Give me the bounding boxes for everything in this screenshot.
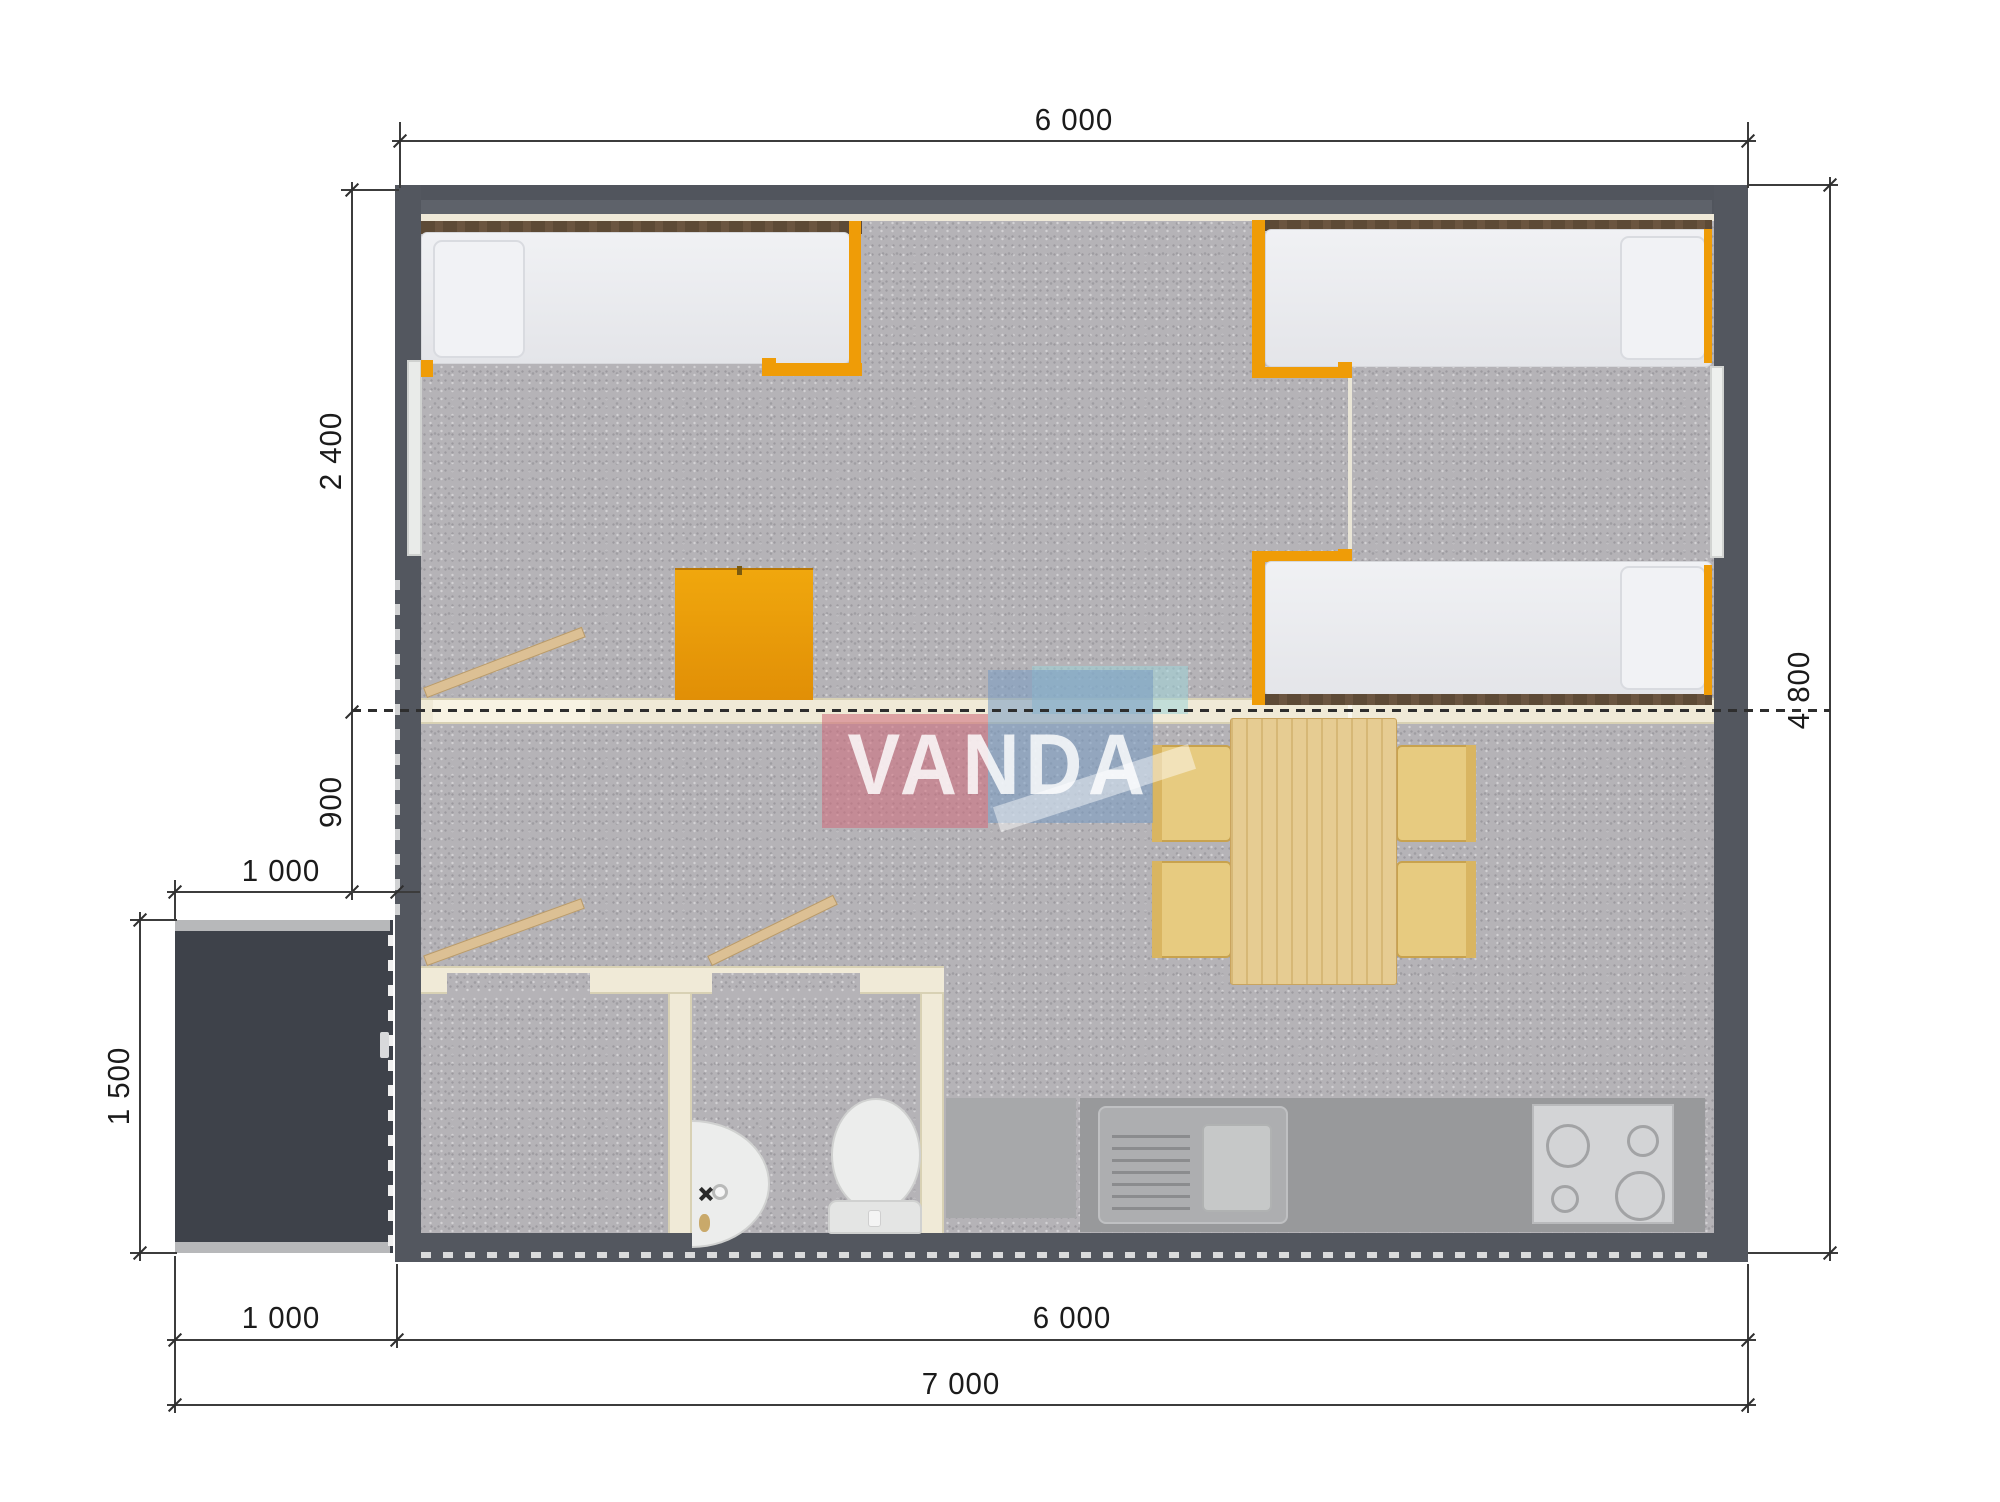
dim-porch-top-line (167, 891, 420, 893)
dim-bedroom-depth-label: 2 400 (314, 385, 348, 518)
chair-bottom-left (1152, 861, 1232, 958)
dim-top-ext-left (399, 122, 401, 188)
bed1-pillow (433, 240, 525, 358)
watermark-brand-text: VANDA (840, 706, 1158, 824)
left-wall-dash-marks (395, 580, 400, 915)
top-wall-inner-band (421, 200, 1712, 214)
dim-total-depth-label: 4 800 (1782, 624, 1816, 757)
bathroom-door-opening-right (712, 973, 860, 994)
right-wall (1714, 185, 1748, 1262)
dim-bottom-line (167, 1339, 1756, 1341)
dim-bottom-ext-mid (396, 1264, 398, 1348)
bed3-pillow (1620, 566, 1706, 690)
floor-plan-canvas: VANDA 6 000 2 400 900 1 000 1 500 1 000 … (0, 0, 2000, 1502)
bed2-frame-post-right (1704, 229, 1712, 363)
bed2-foot-bracket (1338, 362, 1352, 378)
faucet-icon (712, 1184, 728, 1200)
porch-step-top (175, 920, 390, 931)
toilet-bowl (831, 1098, 921, 1212)
bed3-frame-post-left (1252, 551, 1265, 705)
bed1-foot-rail (762, 363, 862, 376)
dim-porch-width-bottom-label: 1 000 (215, 1301, 348, 1335)
dim-top-ext-right (1747, 122, 1749, 188)
entry-door-handle-icon (380, 1032, 389, 1058)
dim-total-depth-line (1829, 177, 1831, 1261)
dim-porch-width-top-label: 1 000 (215, 854, 348, 888)
desk (675, 568, 813, 700)
desk-handle-icon (737, 566, 742, 575)
bathroom-door-opening-left (447, 973, 590, 994)
bed2-frame-post-left (1252, 220, 1265, 377)
dim-top-width-label: 6 000 (1008, 103, 1141, 137)
stove-burner-top-right (1627, 1125, 1659, 1157)
dim-main-width-bottom-label: 6 000 (1006, 1301, 1139, 1335)
window-right (1710, 366, 1724, 558)
bed1-frame-post-right (849, 221, 861, 367)
bed1-foot-bracket (762, 358, 776, 376)
chair-bottom-right-back (1466, 861, 1476, 958)
chair-bottom-right (1396, 861, 1476, 958)
dim-total-depth-ext-bottom (1748, 1252, 1838, 1254)
bed2-foot-rail (1252, 367, 1350, 378)
toilet-flush-button (868, 1210, 881, 1227)
partition-section-dashline (352, 709, 1830, 712)
soap-bottle-icon (699, 1214, 710, 1232)
porch-step-bottom (175, 1242, 390, 1253)
bed2-pillow (1620, 236, 1706, 360)
stove-burner-top-left (1546, 1124, 1590, 1168)
dim-total-width-line (167, 1404, 1756, 1406)
dim-left-line (351, 182, 353, 900)
dim-total-depth-ext-top (1748, 184, 1838, 186)
bathroom-divider-wall (668, 994, 692, 1233)
bed3-headboard (1265, 694, 1712, 705)
stove-burner-bottom-left (1551, 1185, 1579, 1213)
bottom-wall-dash-marks (421, 1252, 1714, 1258)
entry-door-dashline (388, 928, 393, 1246)
dim-bottom-ext-left (174, 1256, 176, 1413)
bed1-frame-corner-left (421, 360, 433, 377)
dim-porch-top-ext (174, 880, 176, 920)
porch (175, 920, 393, 1253)
chair-bottom-left-back (1152, 861, 1162, 958)
chair-top-right (1396, 745, 1476, 842)
bathroom-right-wall (920, 994, 944, 1233)
bed3-frame-post-right (1704, 565, 1712, 695)
stove-burner-bottom-right (1615, 1171, 1665, 1221)
dim-hall-depth-label: 900 (314, 736, 348, 869)
dining-table (1230, 718, 1397, 985)
chair-top-right-back (1466, 745, 1476, 842)
dim-total-width-label: 7 000 (895, 1367, 1028, 1401)
kitchen-cabinet (946, 1098, 1076, 1218)
dim-porch-depth-line (139, 912, 141, 1261)
dim-top-width-line (392, 140, 1756, 142)
drainboard (1112, 1126, 1190, 1210)
sink-basin (1202, 1124, 1272, 1212)
window-left (407, 360, 422, 556)
dim-porch-depth-label: 1 500 (102, 1020, 136, 1153)
